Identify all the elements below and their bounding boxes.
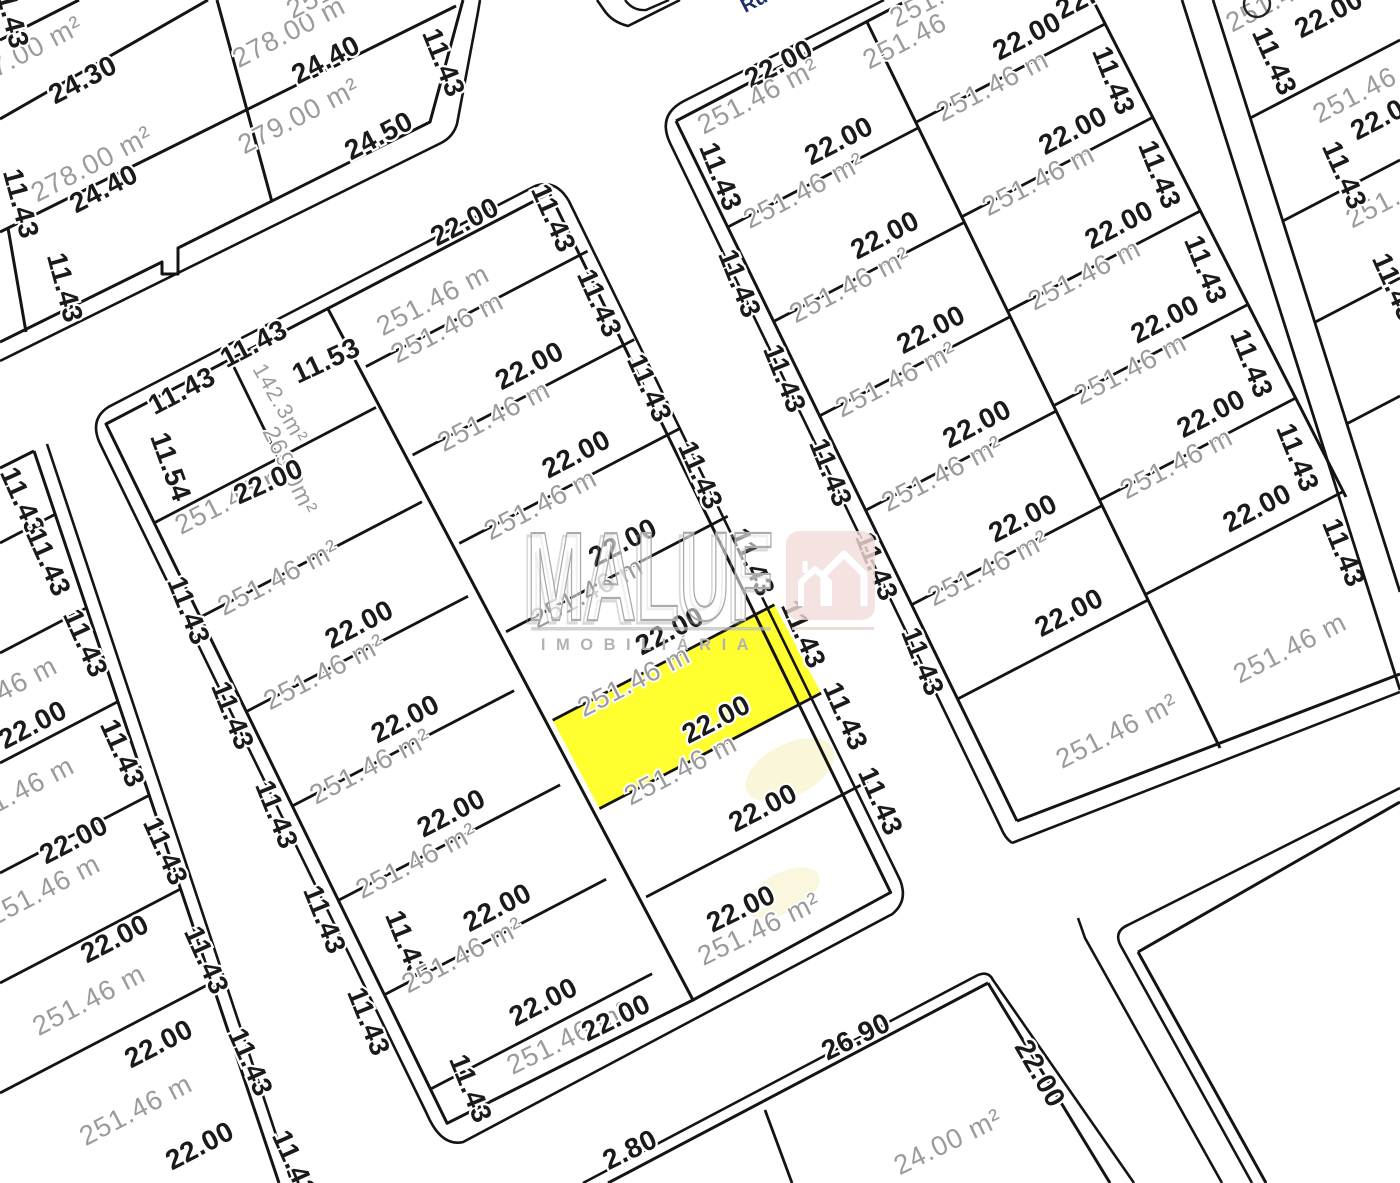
svg-text:MALUF: MALUF <box>527 506 774 647</box>
svg-text:IMOBILIÁRIA: IMOBILIÁRIA <box>541 635 759 654</box>
